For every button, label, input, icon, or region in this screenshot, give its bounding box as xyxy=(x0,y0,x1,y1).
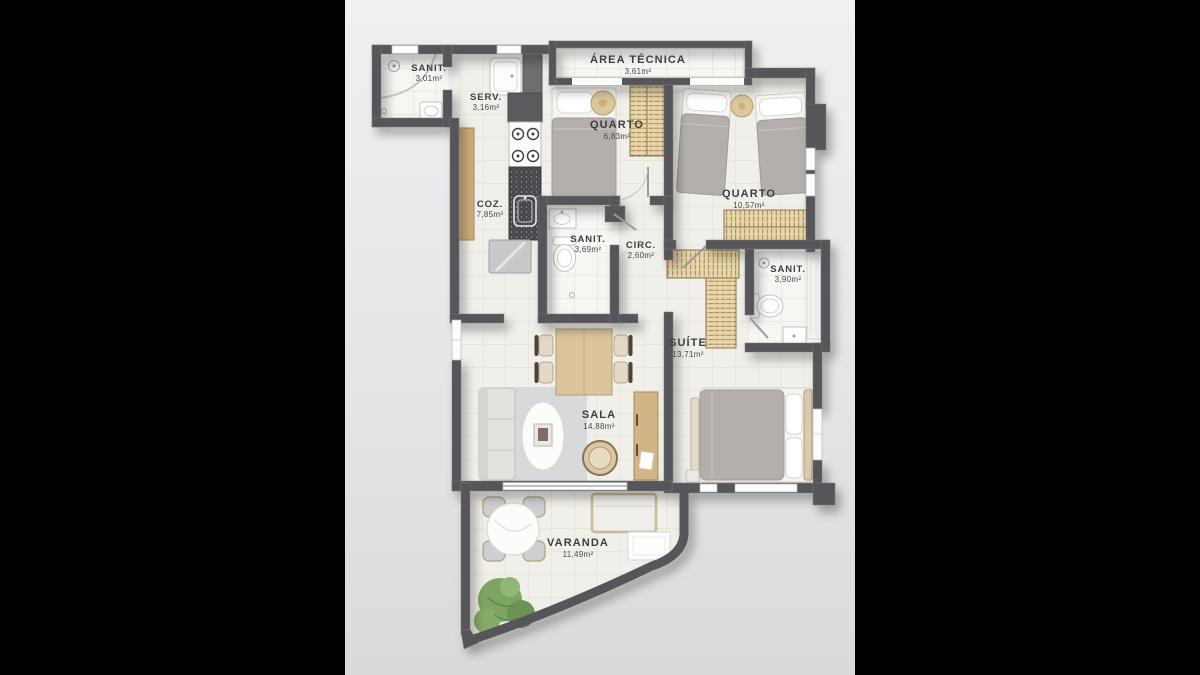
outdoor-sofa xyxy=(592,494,656,532)
toilet-sanit-2 xyxy=(553,237,576,272)
sliding-door xyxy=(503,483,627,491)
outdoor-coffee-table xyxy=(628,532,670,560)
bed-quarto-2-b xyxy=(755,92,812,195)
laundry-tub xyxy=(490,58,521,95)
vanity-sanit-3 xyxy=(783,327,806,345)
wardrobe-quarto-1 xyxy=(630,86,664,156)
bedside-table-quarto-2 xyxy=(731,95,753,117)
sink-sanit-1 xyxy=(420,102,442,119)
letterbox-right xyxy=(855,0,1200,675)
wardrobe-suite-side xyxy=(706,278,736,348)
decor-oval-table xyxy=(522,402,564,470)
wardrobe-quarto-2 xyxy=(724,210,808,244)
kitchen-tall-unit xyxy=(508,93,542,122)
bed-suite xyxy=(686,388,812,482)
sofa xyxy=(479,388,515,480)
kitchen-counter-sink xyxy=(509,167,541,240)
utility-shaft xyxy=(523,54,542,94)
stove xyxy=(509,122,541,167)
sideboard xyxy=(634,392,658,480)
fridge xyxy=(489,240,531,273)
outdoor-round-table xyxy=(487,503,539,555)
vanity-sanit-2 xyxy=(549,209,576,228)
screenshot-stage: SANIT. 3,01m² SERV. 3,16m² ÁREA TÉCNICA … xyxy=(0,0,1200,675)
letterbox-left xyxy=(0,0,345,675)
dining-table xyxy=(556,329,612,395)
wardrobe-suite-top xyxy=(667,250,739,278)
bed-quarto-1 xyxy=(552,88,616,198)
bed-quarto-2-a xyxy=(676,88,731,195)
toilet-sanit-3 xyxy=(751,294,783,318)
